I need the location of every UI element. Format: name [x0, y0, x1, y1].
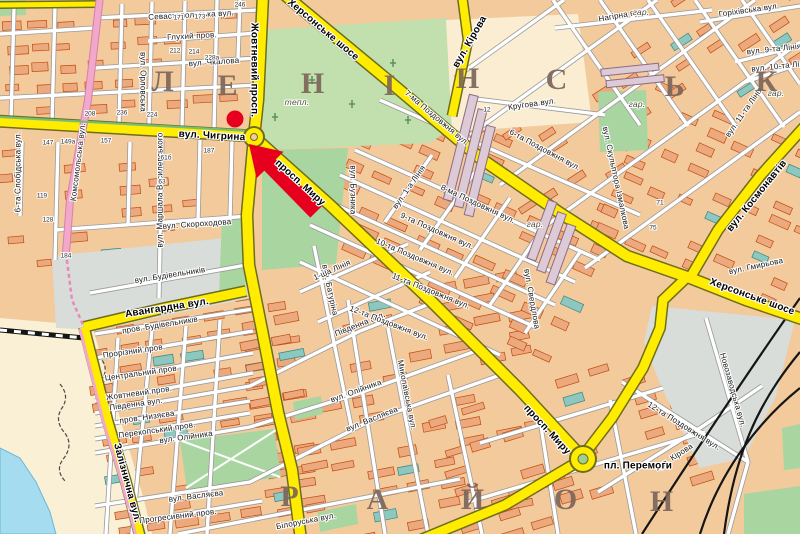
location-marker-dot — [227, 111, 244, 128]
map-canvas — [0, 0, 800, 534]
city-map[interactable]: вул. ЧигринаЖовтневий просп.просп. Мируп… — [0, 0, 800, 534]
